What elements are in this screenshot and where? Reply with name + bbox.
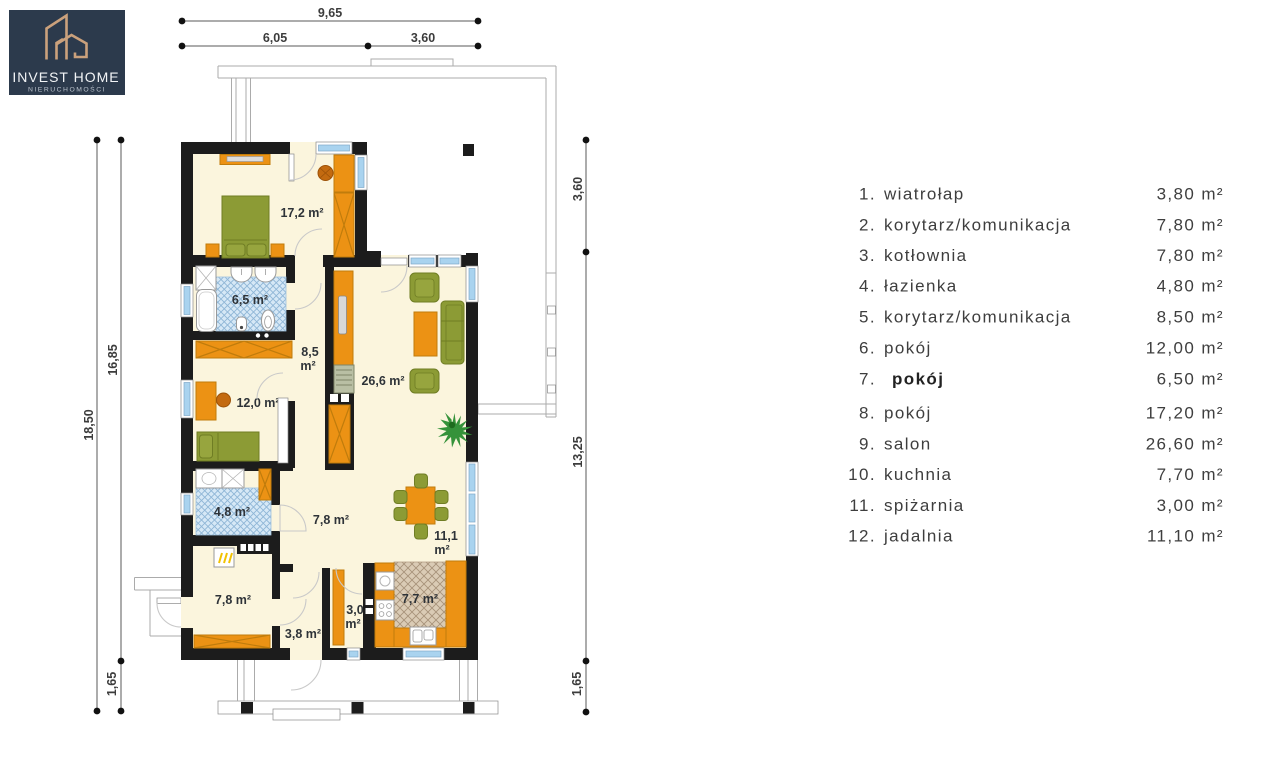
svg-text:11,10 m²: 11,10 m² [1147, 527, 1224, 546]
svg-text:11,1: 11,1 [434, 529, 458, 543]
svg-text:11.: 11. [849, 496, 876, 515]
svg-text:26,6 m²: 26,6 m² [361, 374, 404, 388]
svg-text:7,7 m²: 7,7 m² [402, 592, 438, 606]
svg-text:6,5 m²: 6,5 m² [232, 293, 268, 307]
svg-text:7,80 m²: 7,80 m² [1157, 215, 1224, 234]
svg-text:4,80 m²: 4,80 m² [1157, 277, 1224, 296]
svg-text:7,8 m²: 7,8 m² [215, 593, 251, 607]
svg-text:6,50 m²: 6,50 m² [1157, 370, 1224, 389]
svg-text:kotłownia: kotłownia [884, 246, 967, 265]
svg-text:NIERUCHOMOŚCI: NIERUCHOMOŚCI [28, 85, 106, 94]
svg-text:m²: m² [300, 359, 315, 373]
svg-text:łazienka: łazienka [884, 277, 958, 296]
svg-text:3,0: 3,0 [346, 603, 363, 617]
svg-text:12,00 m²: 12,00 m² [1146, 339, 1224, 358]
svg-text:7.: 7. [859, 370, 876, 389]
svg-text:26,60 m²: 26,60 m² [1146, 434, 1224, 453]
svg-text:spiżarnia: spiżarnia [884, 496, 965, 515]
svg-text:4,8 m²: 4,8 m² [214, 505, 250, 519]
svg-text:2.: 2. [859, 215, 876, 234]
svg-text:8,5: 8,5 [301, 345, 318, 359]
svg-text:pokój: pokój [884, 339, 932, 358]
svg-text:jadalnia: jadalnia [883, 527, 954, 546]
svg-text:8.: 8. [859, 403, 876, 422]
svg-text:3,8 m²: 3,8 m² [285, 627, 321, 641]
svg-text:korytarz/komunikacja: korytarz/komunikacja [884, 307, 1072, 326]
svg-text:kuchnia: kuchnia [884, 465, 952, 484]
svg-text:3,60: 3,60 [411, 31, 435, 45]
svg-text:8,50 m²: 8,50 m² [1157, 307, 1224, 326]
svg-text:salon: salon [884, 434, 932, 453]
svg-text:1,65: 1,65 [570, 672, 584, 696]
svg-text:16,85: 16,85 [106, 344, 120, 375]
svg-text:3,60: 3,60 [571, 177, 585, 201]
svg-text:5.: 5. [859, 307, 876, 326]
svg-text:korytarz/komunikacja: korytarz/komunikacja [884, 215, 1072, 234]
svg-text:17,20 m²: 17,20 m² [1146, 403, 1224, 422]
svg-text:1.: 1. [859, 185, 876, 204]
svg-text:m²: m² [434, 543, 449, 557]
svg-text:pokój: pokój [892, 370, 944, 389]
svg-text:13,25: 13,25 [571, 436, 585, 467]
svg-text:9.: 9. [859, 434, 876, 453]
svg-text:pokój: pokój [884, 403, 932, 422]
svg-text:9,65: 9,65 [318, 6, 342, 20]
svg-text:17,2 m²: 17,2 m² [280, 206, 323, 220]
svg-text:7,80 m²: 7,80 m² [1157, 246, 1224, 265]
svg-text:3,00 m²: 3,00 m² [1157, 496, 1224, 515]
svg-text:4.: 4. [859, 277, 876, 296]
svg-text:m²: m² [345, 617, 360, 631]
svg-text:10.: 10. [848, 465, 876, 484]
svg-text:12,0 m²: 12,0 m² [236, 396, 279, 410]
svg-text:1,65: 1,65 [105, 672, 119, 696]
svg-text:6.: 6. [859, 339, 876, 358]
svg-text:6,05: 6,05 [263, 31, 287, 45]
svg-text:3,80 m²: 3,80 m² [1157, 185, 1224, 204]
svg-text:18,50: 18,50 [82, 409, 96, 440]
svg-text:INVEST HOME: INVEST HOME [12, 69, 119, 85]
svg-text:wiatrołap: wiatrołap [883, 185, 965, 204]
svg-text:12.: 12. [848, 527, 876, 546]
svg-text:3.: 3. [859, 246, 876, 265]
svg-text:7,70 m²: 7,70 m² [1157, 465, 1224, 484]
svg-text:7,8 m²: 7,8 m² [313, 513, 349, 527]
